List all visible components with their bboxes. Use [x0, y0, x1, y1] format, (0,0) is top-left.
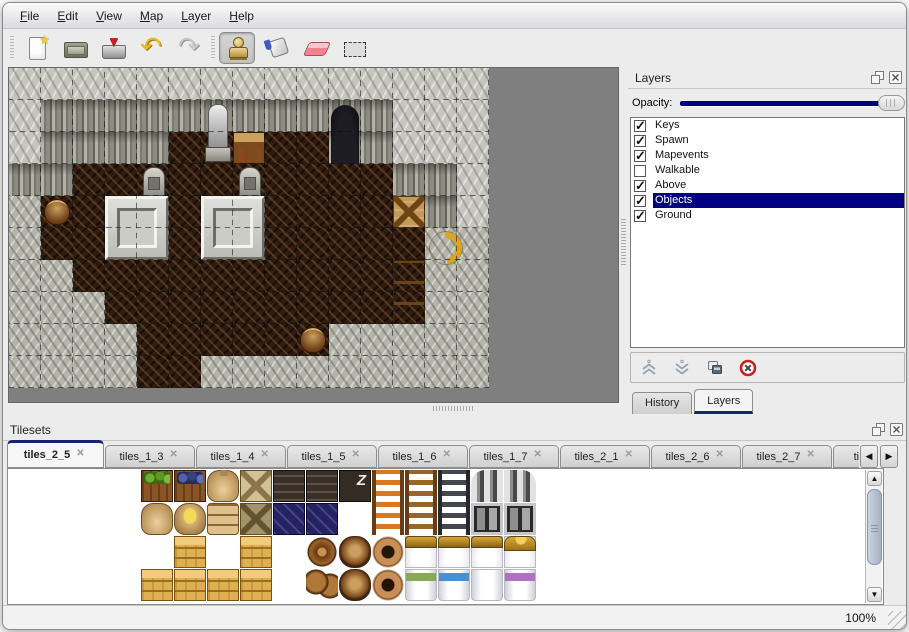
map-tile[interactable]	[41, 356, 73, 388]
map-object-barrel[interactable]	[297, 324, 329, 356]
eraser-button[interactable]	[297, 32, 333, 64]
vertical-splitter[interactable]	[621, 219, 626, 267]
tileset-tile-shelf-dishes[interactable]	[9, 470, 41, 535]
map-tile[interactable]	[9, 356, 41, 388]
tileset-view[interactable]	[7, 468, 884, 605]
tileset-tile-bed-head[interactable]	[471, 536, 503, 568]
zoom-level: 100%	[845, 611, 876, 625]
tileset-scrollbar[interactable]	[865, 470, 882, 603]
menu-file[interactable]: File	[11, 5, 48, 27]
tileset-tile-arch-door[interactable]	[504, 503, 536, 535]
tileset-tile-ladder-brown[interactable]	[405, 470, 437, 535]
stamp-icon	[223, 34, 251, 62]
layer-checkbox[interactable]	[634, 150, 646, 162]
tileset-tab-tiles_1_4[interactable]: tiles_1_4	[196, 445, 286, 468]
map-tile[interactable]	[73, 164, 105, 196]
map-tile[interactable]	[361, 292, 393, 324]
map-tile[interactable]	[361, 100, 393, 132]
map-tile[interactable]	[9, 228, 41, 260]
map-tile[interactable]	[169, 324, 201, 356]
tileset-tab-tiles_1_3[interactable]: tiles_1_3	[105, 445, 195, 468]
map-object-table[interactable]	[233, 132, 265, 164]
tileset-tile-bed-head-gold[interactable]	[504, 536, 536, 568]
map-tile[interactable]	[425, 292, 457, 324]
opacity-row: Opacity:	[632, 94, 903, 112]
tileset-tab-tiles_2_1[interactable]: tiles_2_1	[560, 445, 650, 468]
map-tile[interactable]	[73, 228, 105, 260]
tileset-tile-ladder-dark[interactable]	[438, 470, 470, 535]
tileset-tile-crate-x-dark[interactable]	[240, 503, 272, 535]
float-panel-icon[interactable]	[871, 422, 886, 437]
map-tile[interactable]	[425, 164, 457, 196]
tileset-tile-bed-blue[interactable]	[438, 569, 470, 601]
scroll-up-icon[interactable]	[867, 471, 882, 486]
map-tile[interactable]	[361, 164, 393, 196]
map-tile[interactable]	[297, 228, 329, 260]
map-tile[interactable]	[457, 292, 489, 324]
map-tile[interactable]	[201, 164, 233, 196]
tileset-tab-label: tiles_2_1	[574, 451, 618, 463]
layer-name: Objects	[653, 193, 904, 208]
tileset-tile-arch-door[interactable]	[471, 503, 503, 535]
tileset-tab-label: tiles_2_7	[756, 451, 800, 463]
menu-help[interactable]: Help	[220, 5, 263, 27]
map-canvas[interactable]	[9, 68, 489, 388]
map-tile[interactable]	[265, 100, 297, 132]
map-tile[interactable]	[393, 164, 425, 196]
layer-list[interactable]: KeysSpawnMapeventsWalkableAboveObjectsGr…	[630, 117, 905, 348]
map-tile[interactable]	[265, 164, 297, 196]
map-tile[interactable]	[393, 324, 425, 356]
map-tile[interactable]	[41, 164, 73, 196]
map-tile[interactable]	[169, 68, 201, 100]
map-tile[interactable]	[457, 196, 489, 228]
map-tile[interactable]	[425, 68, 457, 100]
map-tile[interactable]	[73, 100, 105, 132]
tileset-tile-crate-gold[interactable]	[240, 536, 272, 568]
map-tile[interactable]	[233, 292, 265, 324]
redo-icon	[177, 34, 205, 62]
map-tile[interactable]	[137, 324, 169, 356]
map-object-barrel[interactable]	[41, 196, 73, 228]
tileset-tile-bed-head[interactable]	[438, 536, 470, 568]
map-tile[interactable]	[265, 356, 297, 388]
map-tile[interactable]	[393, 356, 425, 388]
map-tile[interactable]	[265, 196, 297, 228]
map-tile[interactable]	[41, 68, 73, 100]
map-tile[interactable]	[457, 164, 489, 196]
map-tile[interactable]	[329, 356, 361, 388]
map-tile[interactable]	[137, 132, 169, 164]
map-tile[interactable]	[201, 356, 233, 388]
map-tile[interactable]	[233, 324, 265, 356]
opacity-slider[interactable]	[680, 101, 903, 106]
map-tile[interactable]	[393, 132, 425, 164]
tileset-tile-bed-head[interactable]	[405, 536, 437, 568]
map-tile[interactable]	[457, 68, 489, 100]
map-tile[interactable]	[169, 164, 201, 196]
toolbar-grip[interactable]	[10, 36, 14, 60]
tileset-tab-tiles_1_5[interactable]: tiles_1_5	[287, 445, 377, 468]
map-tile[interactable]	[361, 68, 393, 100]
map-object-statue[interactable]	[201, 100, 233, 164]
close-panel-icon[interactable]	[889, 422, 904, 437]
map-tile[interactable]	[201, 68, 233, 100]
map-tile[interactable]	[425, 196, 457, 228]
map-tile[interactable]	[361, 228, 393, 260]
close-tab-icon[interactable]	[443, 451, 454, 462]
map-tile[interactable]	[105, 292, 137, 324]
tileset-tile-shelf-books3[interactable]	[108, 536, 140, 601]
tileset-tab-label: tiles_1_6	[392, 451, 436, 463]
map-tile[interactable]	[265, 68, 297, 100]
map-tile[interactable]	[329, 196, 361, 228]
tileset-tab-tiles_2[interactable]: tiles_2	[833, 445, 859, 468]
tileset-tab-label: tiles_1_7	[483, 451, 527, 463]
tilesets-panel-title: Tilesets	[10, 423, 51, 437]
map-tile[interactable]	[9, 68, 41, 100]
app-window: FileEditViewMapLayerHelp Layers Opacity	[2, 2, 907, 630]
map-tile[interactable]	[137, 260, 169, 292]
map-object-altar[interactable]	[105, 196, 169, 260]
layer-checkbox[interactable]	[634, 135, 646, 147]
map-tile[interactable]	[233, 68, 265, 100]
tileset-tab-label: tiles_2_5	[24, 449, 70, 461]
layer-row-keys[interactable]: Keys	[631, 118, 904, 133]
map-tile[interactable]	[73, 68, 105, 100]
map-tile[interactable]	[137, 100, 169, 132]
tileset-tab-label: tiles_1_4	[210, 451, 254, 463]
status-bar: 100%	[3, 605, 907, 630]
map-tile[interactable]	[9, 132, 41, 164]
tileset-tile-shelf-mixed[interactable]	[75, 470, 107, 535]
map-tile[interactable]	[73, 132, 105, 164]
map-tile[interactable]	[265, 292, 297, 324]
tileset-tile-pots[interactable]	[372, 536, 404, 601]
map-tile[interactable]	[201, 292, 233, 324]
layer-row-mapevents[interactable]: Mapevents	[631, 148, 904, 163]
map-tile[interactable]	[457, 100, 489, 132]
map-tile[interactable]	[393, 68, 425, 100]
redo-button[interactable]	[173, 32, 209, 64]
map-tile[interactable]	[169, 100, 201, 132]
close-tab-icon[interactable]	[807, 451, 818, 462]
tilesets-panel: Tilesets tiles_2_5tiles_1_3tiles_1_4tile…	[3, 419, 907, 630]
opacity-label: Opacity:	[632, 97, 672, 109]
map-tile[interactable]	[329, 228, 361, 260]
tileset-tile-crate-gold[interactable]	[141, 569, 173, 601]
close-tab-icon[interactable]	[625, 451, 636, 462]
tileset-tile-crate-dark[interactable]	[273, 470, 305, 502]
layer-name: Mapevents	[653, 148, 904, 163]
map-tile[interactable]	[265, 324, 297, 356]
close-tab-icon[interactable]	[76, 450, 87, 461]
tileset-tile-crate-veg[interactable]	[141, 470, 173, 502]
tileset-tab-tiles_1_7[interactable]: tiles_1_7	[469, 445, 559, 468]
map-tile[interactable]	[233, 356, 265, 388]
map-tile[interactable]	[41, 292, 73, 324]
map-tile[interactable]	[9, 324, 41, 356]
horizontal-splitter[interactable]	[433, 406, 473, 411]
tileset-tab-tiles_2_6[interactable]: tiles_2_6	[651, 445, 741, 468]
map-tile[interactable]	[137, 356, 169, 388]
map-tile[interactable]	[137, 292, 169, 324]
layer-name: Ground	[653, 208, 904, 223]
map-tile[interactable]	[329, 68, 361, 100]
tileset-tab-label: tiles_2	[854, 451, 859, 463]
new-icon	[23, 34, 51, 62]
eraser-icon	[301, 34, 329, 62]
layer-row-spawn[interactable]: Spawn	[631, 133, 904, 148]
map-object-cabinet[interactable]	[393, 260, 425, 324]
tileset-tab-label: tiles_1_3	[119, 451, 163, 463]
map-tile[interactable]	[9, 292, 41, 324]
tileset-tab-tiles_2_5[interactable]: tiles_2_5	[7, 440, 104, 468]
tileset-tile-crate-gold[interactable]	[240, 569, 272, 601]
tileset-tile-crate-x-light[interactable]	[240, 470, 272, 502]
select-button[interactable]	[336, 32, 372, 64]
tileset-tile-bed-purple[interactable]	[504, 569, 536, 601]
layer-name: Keys	[653, 118, 904, 133]
map-object-altar[interactable]	[201, 196, 265, 260]
tileset-tile-crate-navy2[interactable]	[306, 503, 338, 535]
scroll-tabs-right-icon[interactable]	[880, 445, 898, 468]
layer-row-walkable[interactable]: Walkable	[631, 163, 904, 178]
tileset-tile-crate-grapes[interactable]	[174, 470, 206, 502]
close-panel-icon[interactable]	[888, 70, 903, 85]
map-tile[interactable]	[457, 324, 489, 356]
map-tile[interactable]	[297, 292, 329, 324]
map-tile[interactable]	[425, 260, 457, 292]
map-tile[interactable]	[105, 324, 137, 356]
layer-checkbox[interactable]	[634, 165, 646, 177]
map-tile[interactable]	[297, 356, 329, 388]
map-tile[interactable]	[9, 196, 41, 228]
map-tile[interactable]	[425, 356, 457, 388]
lower-layer-icon[interactable]	[672, 358, 692, 378]
panel-tabs: HistoryLayers	[632, 389, 755, 414]
fill-button[interactable]	[258, 32, 294, 64]
map-tile[interactable]	[297, 68, 329, 100]
menu-edit[interactable]: Edit	[48, 5, 87, 27]
tileset-tile-arch-left[interactable]	[471, 470, 503, 502]
save-icon	[99, 34, 127, 62]
map-object-horn[interactable]	[425, 228, 457, 260]
undo-button[interactable]	[135, 32, 171, 64]
map-tile[interactable]	[201, 260, 233, 292]
tileset-tile-barrels[interactable]	[306, 536, 338, 601]
map-tile[interactable]	[105, 164, 137, 196]
map-tile[interactable]	[297, 132, 329, 164]
tileset-tile-crate-gold[interactable]	[207, 569, 239, 601]
map-tile[interactable]	[265, 260, 297, 292]
map-tile[interactable]	[425, 100, 457, 132]
tileset-tile-crate-z[interactable]	[339, 470, 371, 502]
layer-checkbox[interactable]	[634, 195, 646, 207]
map-tile[interactable]	[41, 228, 73, 260]
layer-row-above[interactable]: Above	[631, 178, 904, 193]
map-tile[interactable]	[105, 68, 137, 100]
undo-icon	[139, 34, 167, 62]
menu-map[interactable]: Map	[131, 5, 172, 27]
map-tile[interactable]	[73, 356, 105, 388]
tileset-tile-shelf-jars[interactable]	[108, 470, 140, 535]
map-tile[interactable]	[329, 260, 361, 292]
map-tile[interactable]	[169, 292, 201, 324]
menu-layer[interactable]: Layer	[172, 5, 220, 27]
tileset-tile-arch-right[interactable]	[504, 470, 536, 502]
tab-history[interactable]: History	[632, 392, 692, 414]
opacity-slider-handle[interactable]	[878, 95, 905, 111]
layer-name: Walkable	[653, 163, 904, 178]
map-object-crate-tools[interactable]	[393, 196, 425, 228]
tileset-tile-sack-round[interactable]	[141, 503, 173, 535]
tileset-tile-sack-open[interactable]	[174, 503, 206, 535]
map-tile[interactable]	[457, 260, 489, 292]
tileset-tile-sack-pile[interactable]	[207, 503, 239, 535]
layer-row-ground[interactable]: Ground	[631, 208, 904, 223]
map-tile[interactable]	[361, 356, 393, 388]
tileset-tile-barrel[interactable]	[339, 569, 371, 601]
tileset-tab-tiles_2_7[interactable]: tiles_2_7	[742, 445, 832, 468]
map-object-door[interactable]	[329, 100, 361, 164]
map-object-gravestone[interactable]	[233, 164, 265, 196]
map-object-gravestone[interactable]	[137, 164, 169, 196]
tileset-tile-bed-white[interactable]	[471, 569, 503, 601]
layers-panel-titlebar: Layers	[628, 67, 907, 89]
layers-panel: Layers Opacity: KeysSpawnMapeventsWalkab…	[628, 67, 907, 416]
tileset-tile-bed-green[interactable]	[405, 569, 437, 601]
map-view[interactable]	[8, 67, 619, 403]
map-tile[interactable]	[73, 260, 105, 292]
map-tile[interactable]	[425, 324, 457, 356]
tileset-tile-shelf-bottles[interactable]	[9, 536, 41, 601]
map-tile[interactable]	[73, 196, 105, 228]
map-tile[interactable]	[361, 196, 393, 228]
tileset-tile-crate-dark2[interactable]	[306, 470, 338, 502]
tileset-tile-crate-gold[interactable]	[174, 536, 206, 568]
tileset-tab-label: tiles_1_5	[301, 451, 345, 463]
open-button[interactable]	[57, 32, 93, 64]
resize-grip[interactable]	[888, 611, 906, 629]
map-tile[interactable]	[73, 324, 105, 356]
map-tile[interactable]	[265, 132, 297, 164]
menu-view[interactable]: View	[87, 5, 131, 27]
map-tile[interactable]	[201, 324, 233, 356]
map-tile[interactable]	[297, 260, 329, 292]
layer-row-objects[interactable]: Objects	[631, 193, 904, 208]
float-panel-icon[interactable]	[870, 70, 885, 85]
map-tile[interactable]	[105, 260, 137, 292]
map-tile[interactable]	[457, 356, 489, 388]
map-tile[interactable]	[393, 100, 425, 132]
scroll-down-icon[interactable]	[867, 587, 882, 602]
map-tile[interactable]	[137, 68, 169, 100]
tileset-tab-tiles_1_6[interactable]: tiles_1_6	[378, 445, 468, 468]
map-tile[interactable]	[41, 324, 73, 356]
map-tile[interactable]	[297, 100, 329, 132]
map-tile[interactable]	[169, 132, 201, 164]
map-tile[interactable]	[9, 164, 41, 196]
scroll-tabs-left-icon[interactable]	[860, 445, 878, 468]
map-tile[interactable]	[105, 100, 137, 132]
toolbar	[3, 29, 906, 66]
map-tile[interactable]	[169, 228, 201, 260]
layer-checkbox[interactable]	[634, 120, 646, 132]
tileset-tile-crate-navy[interactable]	[273, 503, 305, 535]
map-tile[interactable]	[9, 100, 41, 132]
tileset-tile-shelf-red[interactable]	[42, 470, 74, 535]
new-button[interactable]	[19, 32, 55, 64]
map-tile[interactable]	[41, 100, 73, 132]
tileset-tabs: tiles_2_5tiles_1_3tiles_1_4tiles_1_5tile…	[7, 440, 859, 468]
fill-icon	[262, 34, 290, 62]
tileset-tile-crate-gold[interactable]	[174, 569, 206, 601]
toolbar-grip[interactable]	[211, 36, 215, 60]
save-button[interactable]	[95, 32, 131, 64]
map-tile[interactable]	[41, 260, 73, 292]
map-tile[interactable]	[425, 132, 457, 164]
layer-buttons	[630, 352, 905, 383]
map-tile[interactable]	[457, 132, 489, 164]
map-tile[interactable]	[329, 292, 361, 324]
tileset-tab-label: tiles_2_6	[665, 451, 709, 463]
map-tile[interactable]	[297, 164, 329, 196]
layer-checkbox[interactable]	[634, 210, 646, 222]
map-tile[interactable]	[265, 228, 297, 260]
map-tile[interactable]	[297, 196, 329, 228]
close-tab-icon[interactable]	[352, 451, 363, 462]
stamp-button[interactable]	[219, 32, 255, 64]
layer-name: Spawn	[653, 133, 904, 148]
close-tab-icon[interactable]	[170, 451, 181, 462]
delete-layer-icon[interactable]	[738, 358, 758, 378]
map-tile[interactable]	[393, 228, 425, 260]
map-tile[interactable]	[233, 100, 265, 132]
map-tile[interactable]	[105, 132, 137, 164]
tilesets-panel-titlebar: Tilesets	[3, 419, 907, 441]
tileset-tile-shelf-books[interactable]	[42, 536, 74, 601]
tileset-tile-shelf-books2[interactable]	[75, 536, 107, 601]
layer-name: Above	[653, 178, 904, 193]
tileset-tile-barrel[interactable]	[339, 536, 371, 568]
tileset-tile-sack[interactable]	[207, 470, 239, 502]
map-tile[interactable]	[329, 164, 361, 196]
map-tile[interactable]	[9, 260, 41, 292]
map-tile[interactable]	[361, 324, 393, 356]
map-tile[interactable]	[169, 260, 201, 292]
map-tile[interactable]	[361, 132, 393, 164]
raise-layer-icon[interactable]	[639, 358, 659, 378]
tab-layers[interactable]: Layers	[694, 389, 753, 414]
layer-checkbox[interactable]	[634, 180, 646, 192]
menu-bar: FileEditViewMapLayerHelp	[3, 3, 906, 29]
close-tab-icon[interactable]	[534, 451, 545, 462]
map-tile[interactable]	[329, 324, 361, 356]
close-tab-icon[interactable]	[261, 451, 272, 462]
map-tile[interactable]	[169, 356, 201, 388]
scrollbar-thumb[interactable]	[867, 489, 882, 565]
duplicate-layer-icon[interactable]	[705, 358, 725, 378]
map-tile[interactable]	[233, 260, 265, 292]
map-tile[interactable]	[41, 132, 73, 164]
map-tile[interactable]	[361, 260, 393, 292]
map-tile[interactable]	[105, 356, 137, 388]
tileset-tile-ladder-orange[interactable]	[372, 470, 404, 535]
map-tile[interactable]	[169, 196, 201, 228]
close-tab-icon[interactable]	[716, 451, 727, 462]
map-tile[interactable]	[73, 292, 105, 324]
